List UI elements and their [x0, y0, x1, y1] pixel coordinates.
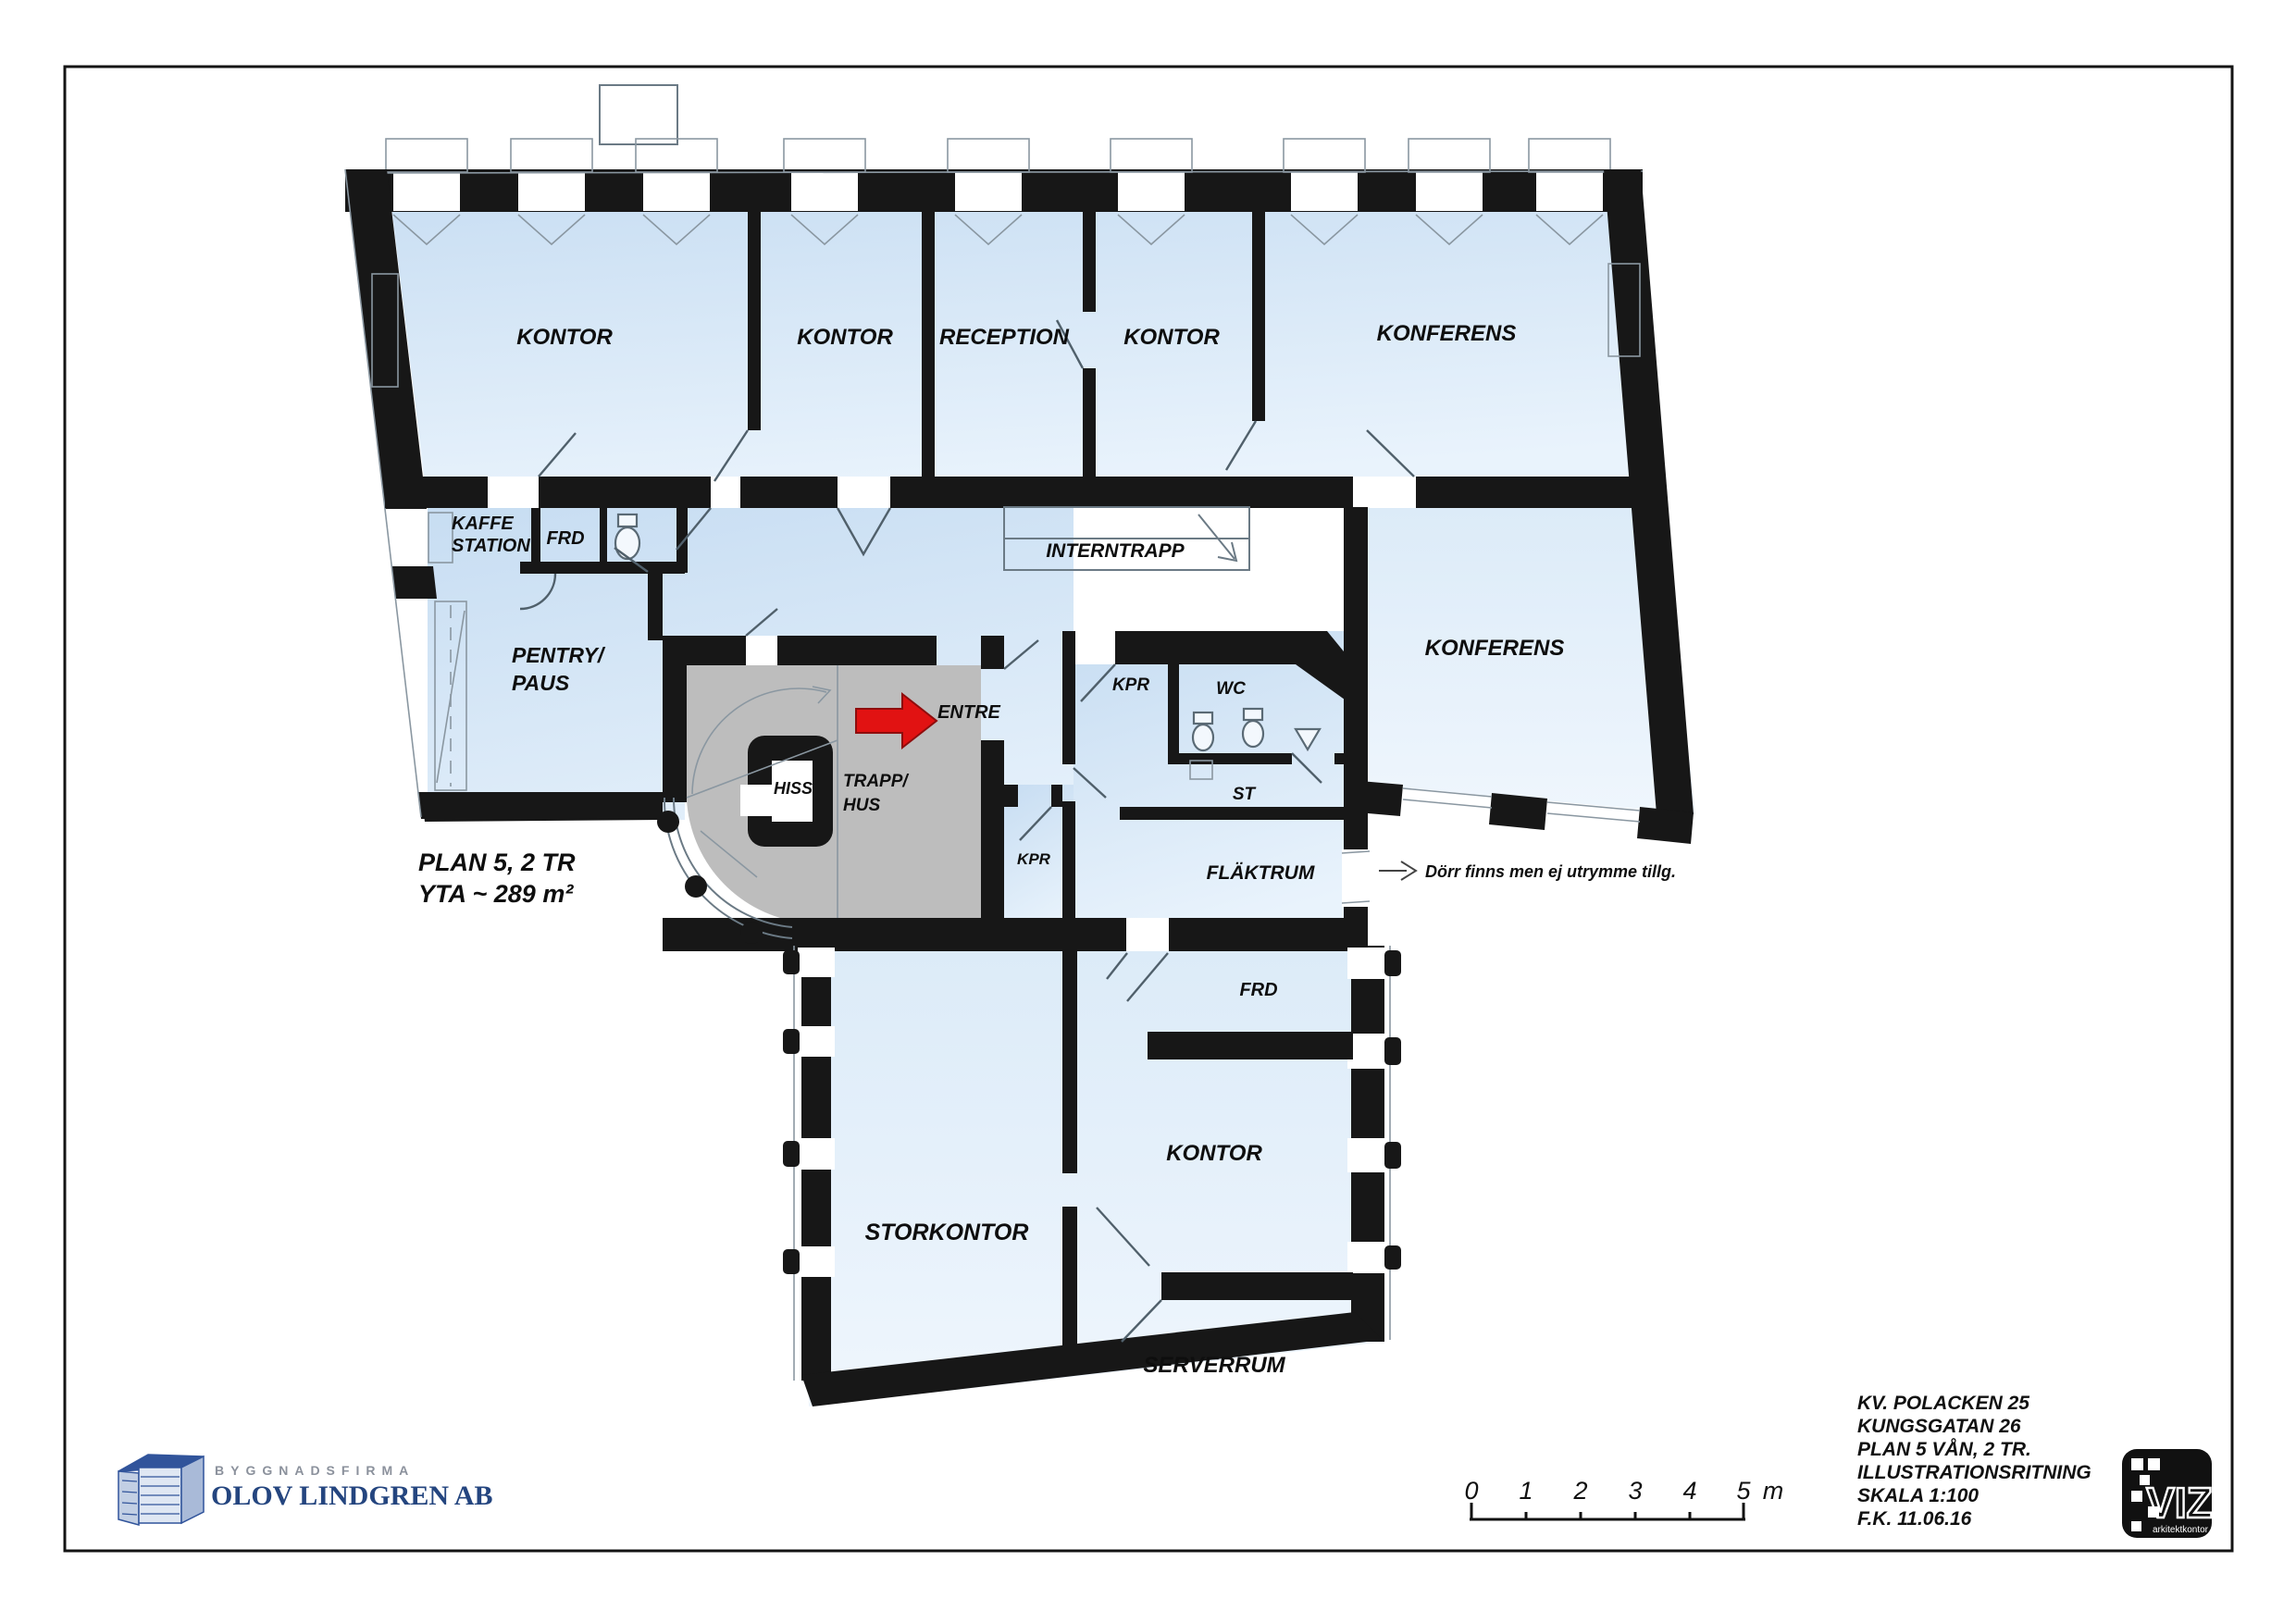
title-line-1: KV. POLACKEN 25: [1857, 1393, 2029, 1414]
room-label-flaktrum: FLÄKTRUM: [1207, 862, 1315, 884]
pentry-south-wall: [421, 792, 663, 822]
room-label-reception: RECEPTION: [939, 325, 1070, 350]
room-label-serverrum: SERVERRUM: [1143, 1353, 1285, 1378]
room-label-konferens-n: KONFERENS: [1377, 321, 1517, 346]
room-label-pentry-2: PAUS: [512, 671, 570, 695]
drawing-sheet: KONTOR KONTOR RECEPTION KONTOR KONFERENS…: [0, 0, 2296, 1623]
room-label-kontor-nw: KONTOR: [516, 325, 613, 350]
toilet-icon: [1244, 709, 1262, 720]
band-south-wall: [385, 477, 1661, 508]
room-label-frd-lower: FRD: [1239, 980, 1277, 1000]
logo-tagline: BYGGNADSFIRMA: [215, 1463, 415, 1478]
room-label-hiss: HISS: [774, 779, 813, 798]
viz-logo: VIZ arkitektkontor: [2122, 1449, 2213, 1538]
room-label-wc: WC: [1216, 679, 1246, 699]
room-label-frd-small: FRD: [546, 528, 584, 549]
plan-label: PLAN 5, 2 TR: [418, 849, 576, 876]
room-label-kpr-lower: KPR: [1017, 850, 1051, 868]
room-label-trapphus-1: TRAPP/: [843, 772, 909, 791]
viz-subtitle: arkitektkontor: [2153, 1525, 2209, 1535]
floor-plan-svg: KONTOR KONTOR RECEPTION KONTOR KONFERENS…: [0, 0, 2296, 1623]
viz-name: VIZ: [2146, 1479, 2213, 1527]
room-label-kaffe-1: KAFFE: [452, 514, 514, 534]
scale-tick-1: 1: [1519, 1477, 1533, 1505]
room-label-kontor-s: KONTOR: [1166, 1141, 1262, 1166]
scale-unit: m: [1763, 1477, 1784, 1505]
scale-tick-5: 5: [1736, 1477, 1751, 1505]
room-label-entre: ENTRE: [937, 702, 1000, 723]
room-label-kpr-upper: KPR: [1112, 675, 1149, 695]
toilet-icon: [1194, 712, 1212, 724]
toilet-icon: [618, 514, 637, 527]
title-line-5: SKALA 1:100: [1857, 1485, 1979, 1506]
room-label-storkontor: STORKONTOR: [865, 1220, 1029, 1245]
room-label-interntrapp: INTERNTRAPP: [1046, 540, 1185, 562]
area-label: YTA ~ 289 m²: [418, 880, 574, 908]
scale-tick-4: 4: [1682, 1477, 1696, 1505]
scale-tick-0: 0: [1464, 1477, 1478, 1505]
building-logo-icon: [118, 1455, 204, 1525]
room-label-trapphus-2: HUS: [843, 796, 880, 815]
chimney-outline: [600, 85, 677, 144]
room-label-kontor-n: KONTOR: [797, 325, 893, 350]
room-label-pentry-1: PENTRY/: [512, 643, 606, 667]
scale-tick-3: 3: [1628, 1477, 1642, 1505]
scale-tick-2: 2: [1572, 1477, 1587, 1505]
annotation-text: Dörr finns men ej utrymme tillg.: [1425, 862, 1676, 881]
title-line-3: PLAN 5 VÅN, 2 TR.: [1857, 1438, 2031, 1460]
room-label-konferens-e: KONFERENS: [1425, 636, 1565, 661]
title-line-6: F.K. 11.06.16: [1857, 1508, 1972, 1530]
east-mid-wall: [1342, 507, 1370, 946]
room-label-kontor-ne: KONTOR: [1123, 325, 1220, 350]
logo-company: OLOV LINDGREN AB: [211, 1481, 493, 1511]
title-line-4: ILLUSTRATIONSRITNING: [1857, 1462, 2091, 1483]
room-label-st: ST: [1233, 785, 1257, 804]
title-line-2: KUNGSGATAN 26: [1857, 1416, 2021, 1437]
room-label-kaffe-2: STATION: [452, 536, 530, 556]
